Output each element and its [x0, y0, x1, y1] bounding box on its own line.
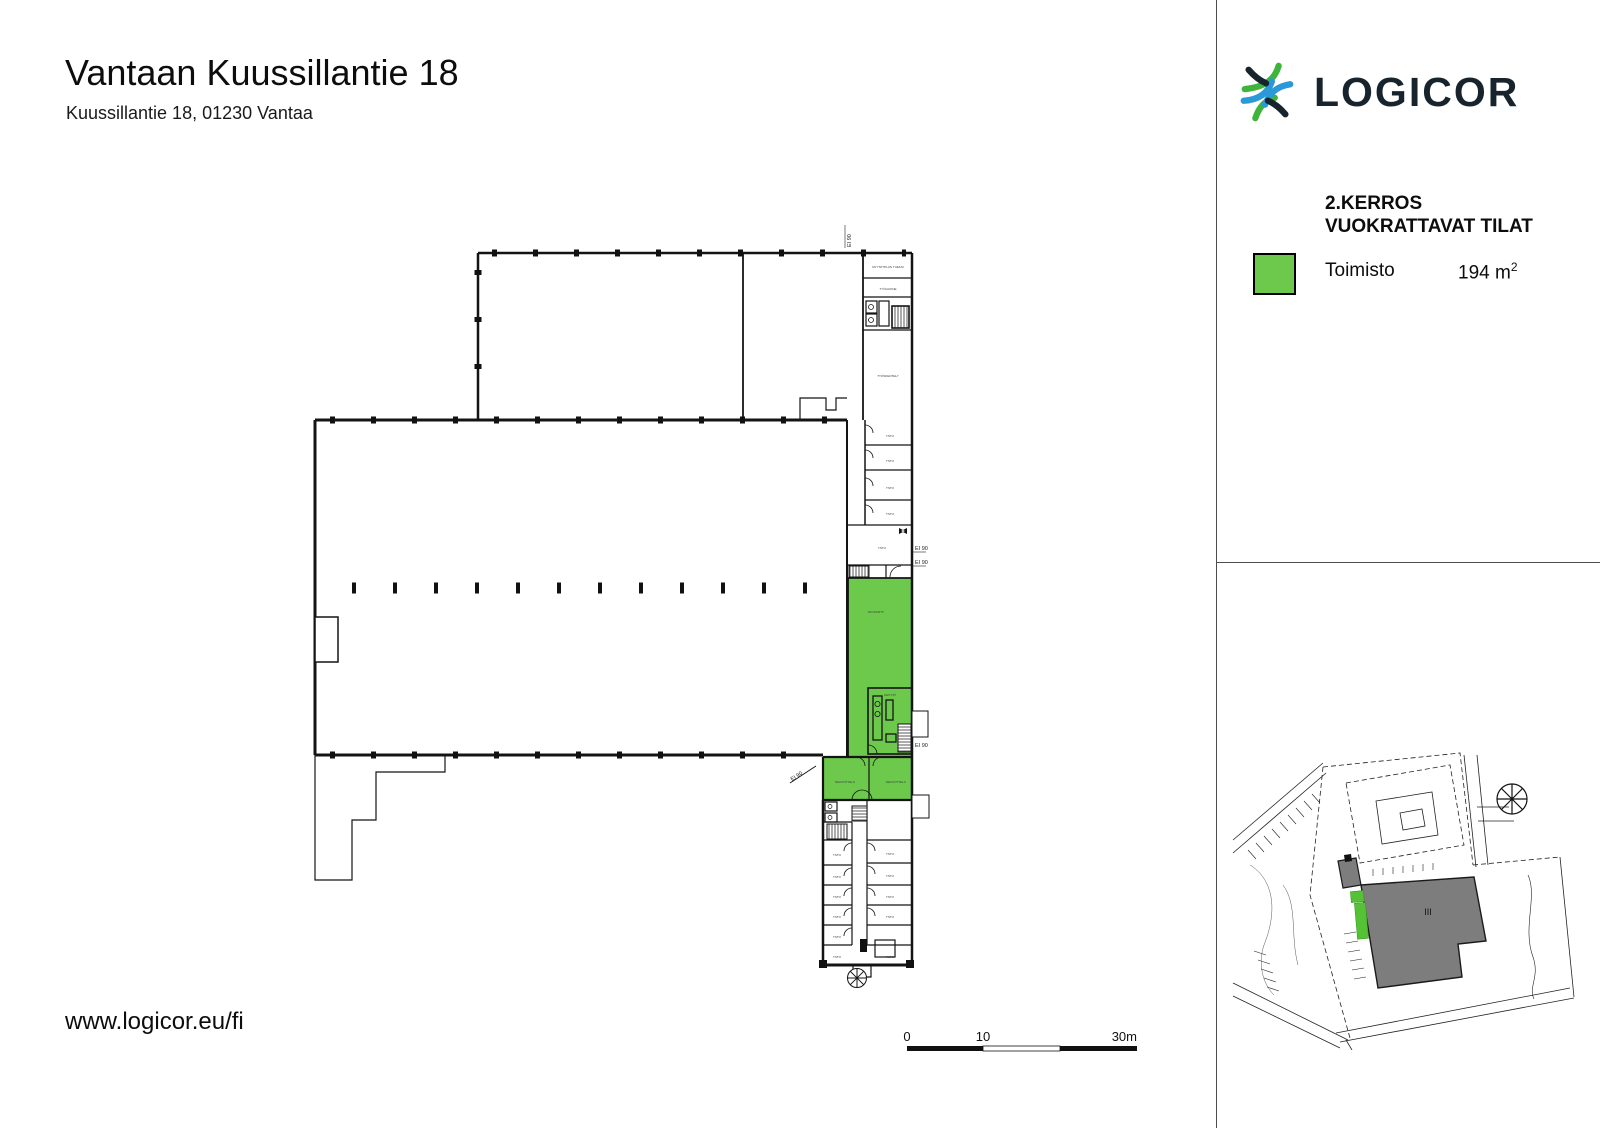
svg-text:EI 90: EI 90	[790, 771, 804, 783]
svg-text:TSTO: TSTO	[886, 915, 895, 919]
hall-left-recess	[315, 617, 338, 662]
svg-text:EI 90: EI 90	[915, 560, 928, 566]
svg-text:TSTO: TSTO	[886, 486, 895, 490]
svg-text:NEUVOTTELU: NEUVOTTELU	[886, 780, 906, 784]
logicor-wordmark: LOGICOR	[1314, 69, 1519, 116]
svg-text:TYÖHUONE: TYÖHUONE	[879, 287, 896, 291]
svg-text:EI 90: EI 90	[915, 546, 928, 552]
svg-text:TSTO: TSTO	[833, 853, 842, 857]
wing-office-rooms	[847, 420, 912, 578]
svg-text:TSTO: TSTO	[886, 852, 895, 856]
column-ticks	[330, 253, 906, 755]
svg-text:10: 10	[976, 1029, 990, 1044]
svg-text:TSTO: TSTO	[833, 915, 842, 919]
svg-text:TSTO: TSTO	[833, 895, 842, 899]
slope-hatching	[1248, 794, 1320, 991]
svg-text:MYYNTITILAN TUEKSI: MYYNTITILAN TUEKSI	[872, 265, 904, 269]
svg-text:TSTO: TSTO	[878, 546, 887, 550]
legend-item-area: 194 m2	[1458, 260, 1518, 284]
svg-text:EI 90: EI 90	[847, 234, 853, 247]
logicor-logo-icon	[1236, 60, 1298, 124]
svg-text:TSTO: TSTO	[833, 935, 842, 939]
svg-text:TSTO: TSTO	[886, 434, 895, 438]
wall-corner	[906, 960, 914, 968]
wall-corner	[819, 960, 827, 968]
site-building-label: III	[1424, 907, 1432, 917]
logicor-logo: LOGICOR	[1236, 60, 1519, 124]
svg-text:TYÖSKENTELY: TYÖSKENTELY	[877, 374, 899, 378]
svg-text:TSTO: TSTO	[833, 875, 842, 879]
scale-bar: 0 10 30m	[903, 1029, 1137, 1051]
area-value: 194 m	[1458, 262, 1511, 283]
building-walls	[315, 253, 913, 965]
svg-text:30m: 30m	[1112, 1029, 1137, 1044]
wing-top-rooms	[863, 278, 912, 330]
svg-text:TSTO: TSTO	[886, 895, 895, 899]
loading-dock-outline	[315, 755, 445, 880]
svg-text:TSTO: TSTO	[886, 955, 895, 959]
svg-text:TSTO: TSTO	[886, 512, 895, 516]
page: Vantaan Kuussillantie 18 Kuussillantie 1…	[0, 0, 1600, 1128]
svg-text:0: 0	[903, 1029, 910, 1044]
svg-text:AVOKONTT.: AVOKONTT.	[868, 610, 885, 614]
svg-text:EI 90: EI 90	[915, 743, 928, 749]
legend-heading: 2.KERROS VUOKRATTAVAT TILAT	[1325, 192, 1533, 238]
site-building: III	[1338, 854, 1486, 988]
svg-text:TSTO: TSTO	[886, 874, 895, 878]
site-map: III	[1228, 745, 1593, 1050]
website-link[interactable]: www.logicor.eu/fi	[65, 1008, 244, 1036]
compass-icon	[1497, 784, 1527, 814]
legend-item-label: Toimisto	[1325, 260, 1395, 282]
area-sup: 2	[1511, 260, 1518, 274]
legend-color-swatch	[1253, 253, 1296, 295]
svg-text:NEUVOTTELU: NEUVOTTELU	[835, 780, 855, 784]
horizontal-divider	[1216, 562, 1600, 563]
spiral-stair	[848, 969, 867, 988]
svg-text:KEITTIÖ: KEITTIÖ	[884, 693, 896, 697]
floor-plan: EI 90 EI 90 EI 90 EI 90 EI 90 MYYNTITILA…	[0, 0, 1217, 1128]
svg-text:TSTO: TSTO	[886, 459, 895, 463]
svg-text:TSTO: TSTO	[833, 955, 842, 959]
